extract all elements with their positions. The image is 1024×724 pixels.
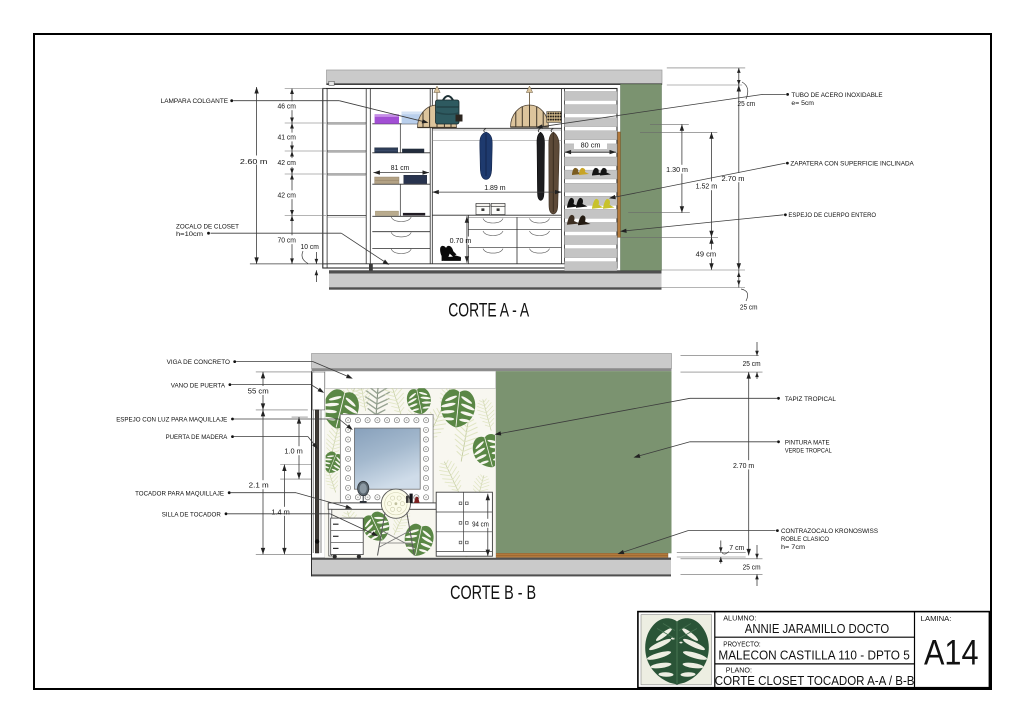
svg-text:46 cm: 46 cm <box>277 103 296 110</box>
svg-text:2.70 m: 2.70 m <box>722 176 745 183</box>
svg-text:1.0 m: 1.0 m <box>284 449 303 456</box>
svg-text:ROBLE CLASICO: ROBLE CLASICO <box>781 536 829 543</box>
svg-text:CORTE CLOSET TOCADOR A-A / B-B: CORTE CLOSET TOCADOR A-A / B-B <box>715 673 915 688</box>
svg-text:ANNIE JARAMILLO DOCTO: ANNIE JARAMILLO DOCTO <box>745 621 889 636</box>
svg-text:42 cm: 42 cm <box>277 192 296 199</box>
svg-text:49 cm: 49 cm <box>696 252 717 259</box>
svg-text:2.60 m: 2.60 m <box>240 159 268 166</box>
svg-text:ESPEJO CON LUZ PARA MAQUILLAJE: ESPEJO CON LUZ PARA MAQUILLAJE <box>116 417 228 424</box>
svg-text:70 cm: 70 cm <box>277 237 296 244</box>
svg-text:25 cm: 25 cm <box>738 101 756 108</box>
svg-text:h=10cm: h=10cm <box>176 231 203 238</box>
svg-text:VIGA DE CONCRETO: VIGA DE CONCRETO <box>167 359 230 366</box>
svg-text:h= 7cm: h= 7cm <box>781 544 805 551</box>
svg-text:ZOCALO DE CLOSET: ZOCALO DE CLOSET <box>176 223 239 230</box>
svg-text:2.1 m: 2.1 m <box>249 483 269 490</box>
svg-text:1.4 m: 1.4 m <box>271 509 290 516</box>
svg-text:PINTURA MATE: PINTURA MATE <box>785 439 830 446</box>
svg-text:7 cm: 7 cm <box>729 545 744 552</box>
svg-text:TAPIZ TROPICAL: TAPIZ TROPICAL <box>785 396 836 403</box>
svg-text:TOCADOR PARA MAQUILLAJE: TOCADOR PARA MAQUILLAJE <box>135 490 224 497</box>
svg-text:25 cm: 25 cm <box>743 361 761 368</box>
svg-text:42 cm: 42 cm <box>277 160 296 167</box>
svg-text:TUBO DE ACERO INOXIDABLE: TUBO DE ACERO INOXIDABLE <box>791 92 883 99</box>
svg-text:1.30 m: 1.30 m <box>666 167 688 174</box>
svg-text:80 cm: 80 cm <box>581 142 601 149</box>
svg-text:1.89 m: 1.89 m <box>484 185 506 192</box>
svg-text:25 cm: 25 cm <box>743 564 761 571</box>
svg-text:A14: A14 <box>924 634 979 673</box>
svg-text:CORTE A - A: CORTE A - A <box>448 300 529 322</box>
svg-text:CONTRAZOCALO KRONOSWISS: CONTRAZOCALO KRONOSWISS <box>781 528 878 535</box>
svg-text:CORTE B - B: CORTE B - B <box>450 582 536 604</box>
svg-text:94 cm: 94 cm <box>472 521 489 528</box>
svg-text:LAMINA:: LAMINA: <box>921 614 952 623</box>
svg-text:ESPEJO DE CUERPO ENTERO: ESPEJO DE CUERPO ENTERO <box>788 212 876 219</box>
svg-text:SILLA DE TOCADOR: SILLA DE TOCADOR <box>162 511 221 518</box>
svg-text:ZAPATERA CON SUPERFICIE INCLIN: ZAPATERA CON SUPERFICIE INCLINADA <box>790 161 914 168</box>
svg-text:0.70 m: 0.70 m <box>450 238 472 245</box>
svg-text:PUERTA DE MADERA: PUERTA DE MADERA <box>166 434 228 441</box>
svg-text:10 cm: 10 cm <box>301 244 319 251</box>
svg-text:e= 5cm: e= 5cm <box>791 100 814 107</box>
svg-text:25 cm: 25 cm <box>740 305 758 312</box>
svg-text:55 cm: 55 cm <box>248 389 269 396</box>
svg-text:2.70 m: 2.70 m <box>733 463 754 470</box>
svg-text:41 cm: 41 cm <box>277 135 296 142</box>
svg-text:LAMPARA COLGANTE: LAMPARA COLGANTE <box>161 98 229 105</box>
svg-text:1.52 m: 1.52 m <box>696 183 718 190</box>
svg-text:81 cm: 81 cm <box>391 165 410 172</box>
svg-text:VANO DE PUERTA: VANO DE PUERTA <box>171 382 226 389</box>
svg-text:VERDE TROPCAL: VERDE TROPCAL <box>785 448 832 455</box>
svg-text:MALECON CASTILLA 110 - DPTO 5: MALECON CASTILLA 110 - DPTO 5 <box>718 648 909 663</box>
